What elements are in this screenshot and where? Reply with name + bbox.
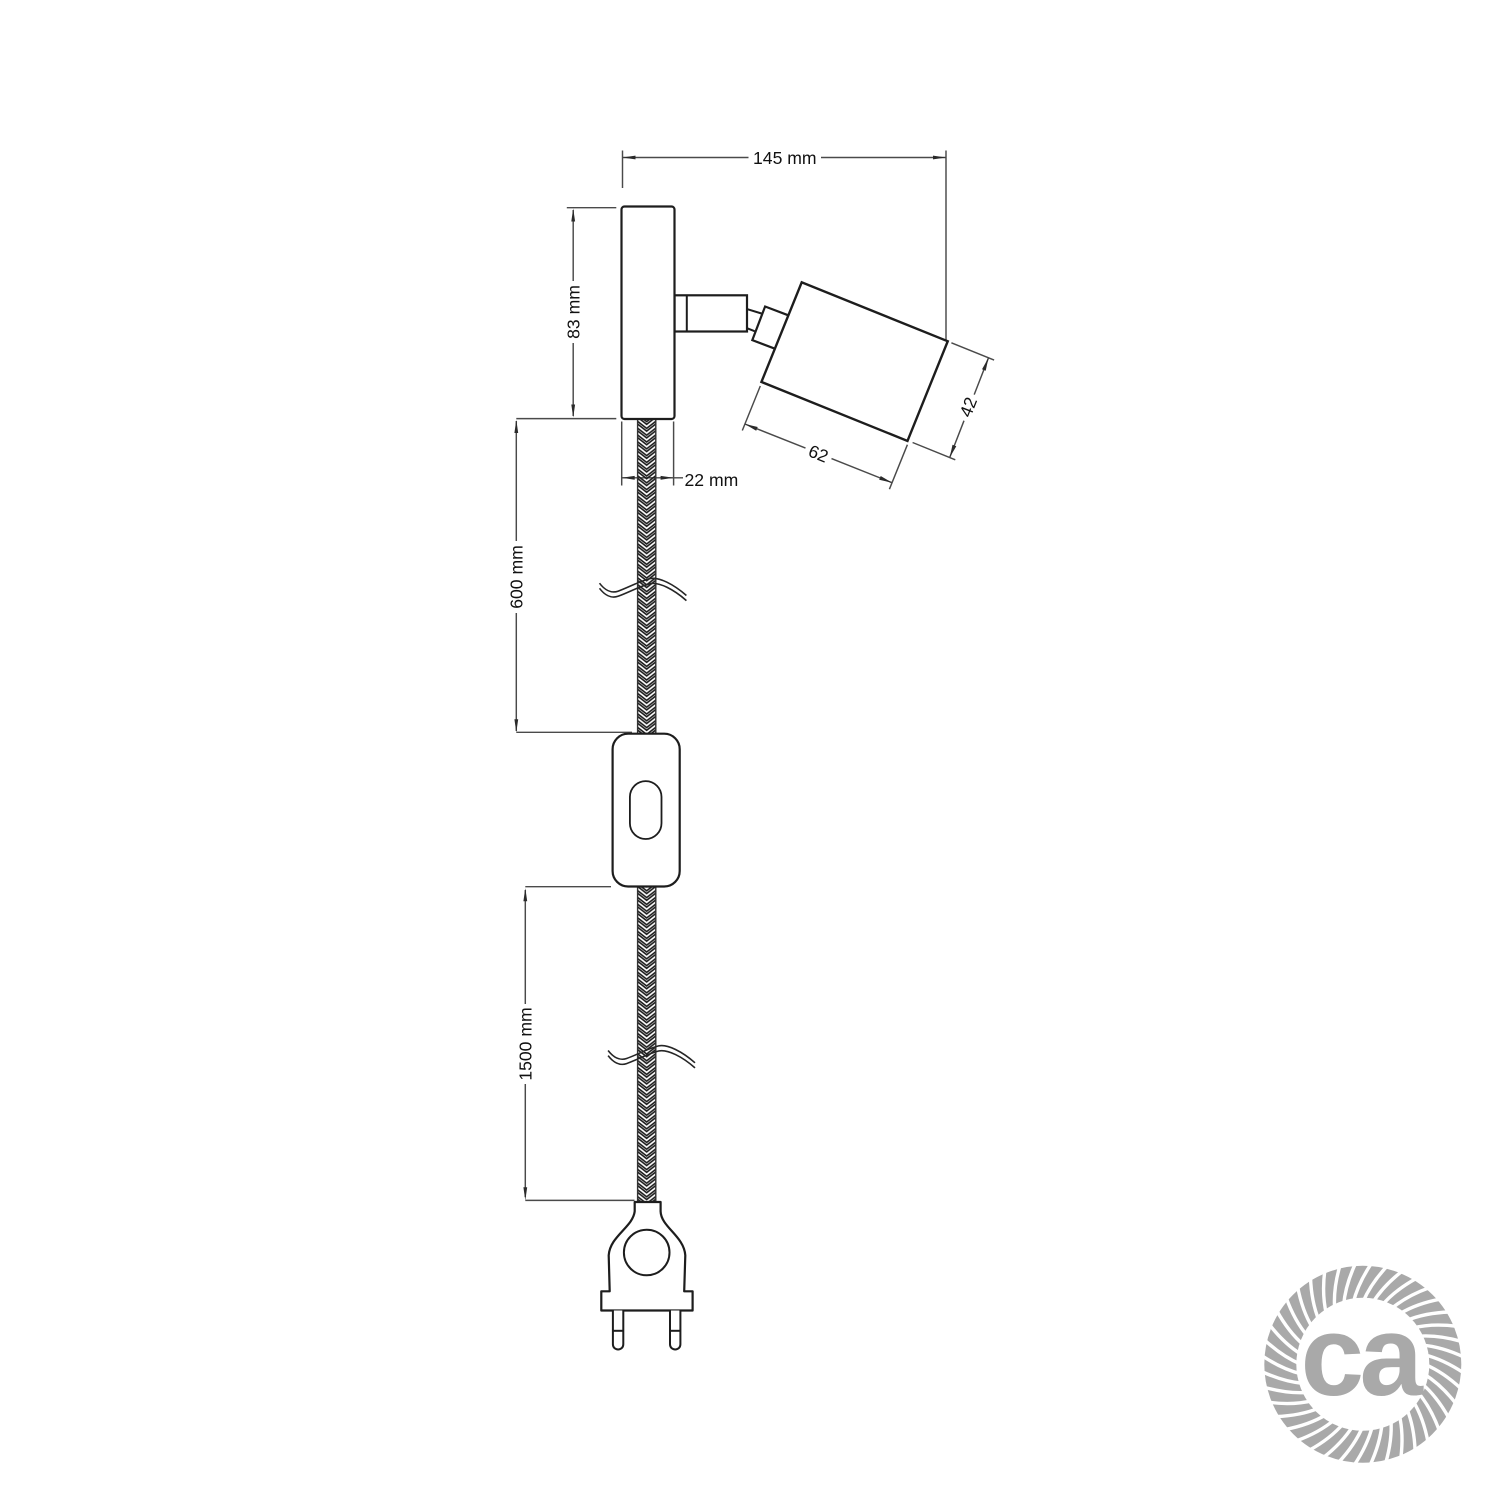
svg-text:145 mm: 145 mm — [753, 148, 817, 168]
svg-text:600 mm: 600 mm — [507, 545, 527, 609]
svg-text:22 mm: 22 mm — [685, 470, 739, 490]
svg-text:42: 42 — [955, 394, 981, 420]
svg-text:1500 mm: 1500 mm — [516, 1007, 536, 1080]
svg-text:ca: ca — [1301, 1293, 1425, 1420]
svg-text:62: 62 — [806, 441, 832, 467]
svg-text:83 mm: 83 mm — [564, 285, 584, 339]
